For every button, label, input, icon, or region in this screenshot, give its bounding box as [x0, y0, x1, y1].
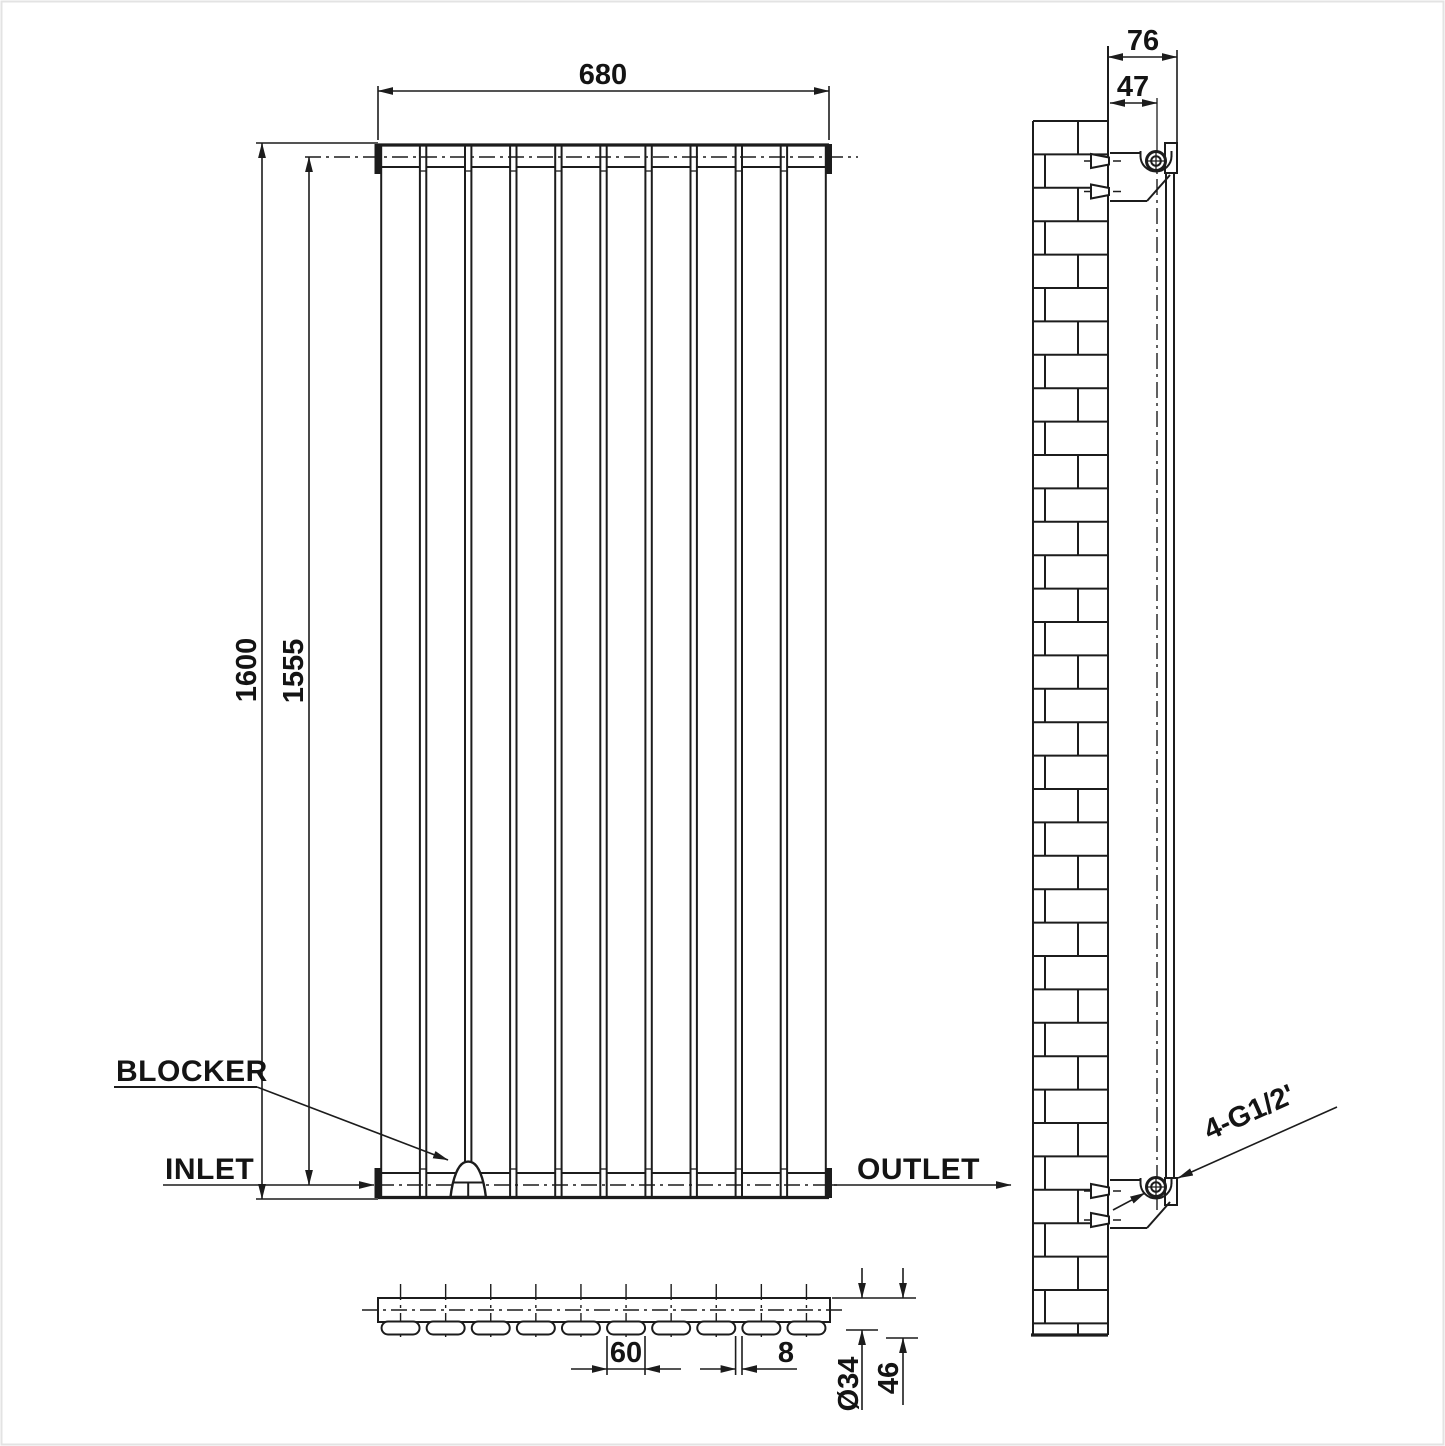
dim-tube-diameter-label: Ø34: [833, 1357, 865, 1412]
bottom-bracket-diagonal: [1147, 1202, 1170, 1228]
dim-panel-gap-label: 8: [778, 1337, 794, 1369]
panel-section-oval: [382, 1322, 420, 1335]
wall-screw-icon: [1091, 1184, 1109, 1198]
connection-leader-arrow-2: [1113, 1193, 1145, 1210]
header-end-plug: [826, 144, 833, 174]
dim-depth-label: 76: [1127, 25, 1159, 57]
dim-panel-width-label: 60: [610, 1337, 642, 1369]
drawing-page: 680 1600 1555 BLOCKER INLET OUTLET: [0, 0, 1445, 1446]
dim-height-label: 1600: [231, 638, 263, 703]
dim-total-depth-label: 46: [873, 1362, 905, 1394]
bottom-section-view: 60 8 Ø34 46: [362, 1268, 918, 1411]
panel-section-oval: [427, 1322, 465, 1335]
wall-screw-icon: [1091, 1213, 1109, 1227]
side-view: 76 47 4-G1/2': [1031, 25, 1337, 1335]
panel-section-oval: [787, 1322, 825, 1335]
panel-section-oval: [607, 1322, 645, 1335]
wall-screw-icon: [1091, 185, 1109, 199]
connection-thread-label: 4-G1/2': [1199, 1079, 1299, 1147]
inlet-label: INLET: [165, 1153, 254, 1186]
panel-section-oval: [517, 1322, 555, 1335]
wall-screw-icon: [1091, 154, 1109, 168]
header-end-plug: [826, 1168, 833, 1198]
front-view: 680 1600 1555 BLOCKER INLET OUTLET: [114, 59, 1011, 1199]
panel-section-oval: [742, 1322, 780, 1335]
page-border: [2, 2, 1444, 1445]
top-bracket: [1110, 151, 1172, 201]
header-end-plug: [375, 1168, 382, 1198]
dim-width-label: 680: [579, 59, 627, 91]
panel-section-oval: [652, 1322, 690, 1335]
radiator-technical-drawing: 680 1600 1555 BLOCKER INLET OUTLET: [0, 0, 1445, 1446]
dim-inner-height-label: 1555: [278, 639, 310, 704]
blocker-label: BLOCKER: [116, 1055, 268, 1088]
dim-bracket-offset-label: 47: [1117, 71, 1149, 103]
outlet-label: OUTLET: [857, 1153, 980, 1186]
header-end-plug: [375, 144, 382, 174]
panel-section-oval: [562, 1322, 600, 1335]
panel-section-oval: [472, 1322, 510, 1335]
panel-section-oval: [697, 1322, 735, 1335]
